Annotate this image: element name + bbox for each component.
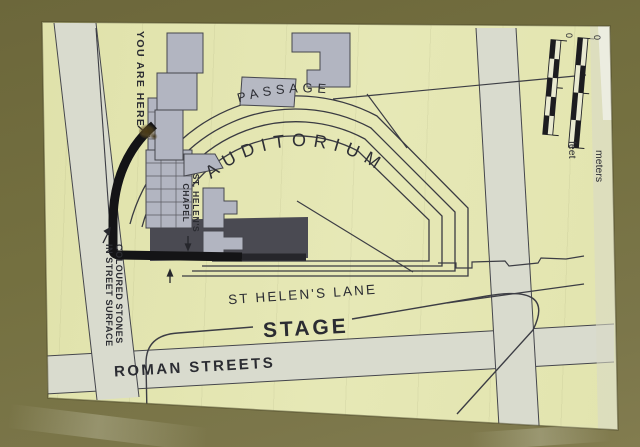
building-northwest-3 [155, 110, 183, 160]
scale-bar-feet [543, 40, 567, 136]
feet-label: feet [566, 141, 578, 159]
scale-bar-meters [568, 38, 594, 149]
coloured-stones-line2: IN STREET SURFACE [103, 244, 113, 340]
coloured-stones-arrow-2 [168, 270, 173, 283]
chapel-label: ST. HELEN'S CHAPEL [180, 172, 200, 234]
dirt-spot-small [150, 133, 158, 140]
building-northwest-2 [157, 73, 197, 110]
coloured-stones-line1: COLOURED STONES [114, 244, 124, 340]
you-are-here-label: YOU ARE HERE [134, 31, 146, 127]
stage-label: STAGE [262, 315, 349, 344]
chapel-label-line1: ST. HELEN'S [190, 172, 200, 234]
chapel-label-line2: CHAPEL [180, 172, 190, 234]
building-north-central [292, 33, 350, 87]
meters-label: meters [593, 150, 605, 182]
feet-zero-label: 0 [564, 33, 574, 38]
map-drawing: AUDITORIUM PASSAGE [0, 0, 640, 447]
meters-zero-label: 0 [592, 35, 602, 40]
building-northwest-1 [167, 33, 203, 73]
street-band-left [54, 23, 139, 400]
sign-photo: AUDITORIUM PASSAGE YOU ARE HERE ST. HELE… [0, 0, 640, 447]
coloured-stones-label: COLOURED STONES IN STREET SURFACE [103, 244, 124, 340]
